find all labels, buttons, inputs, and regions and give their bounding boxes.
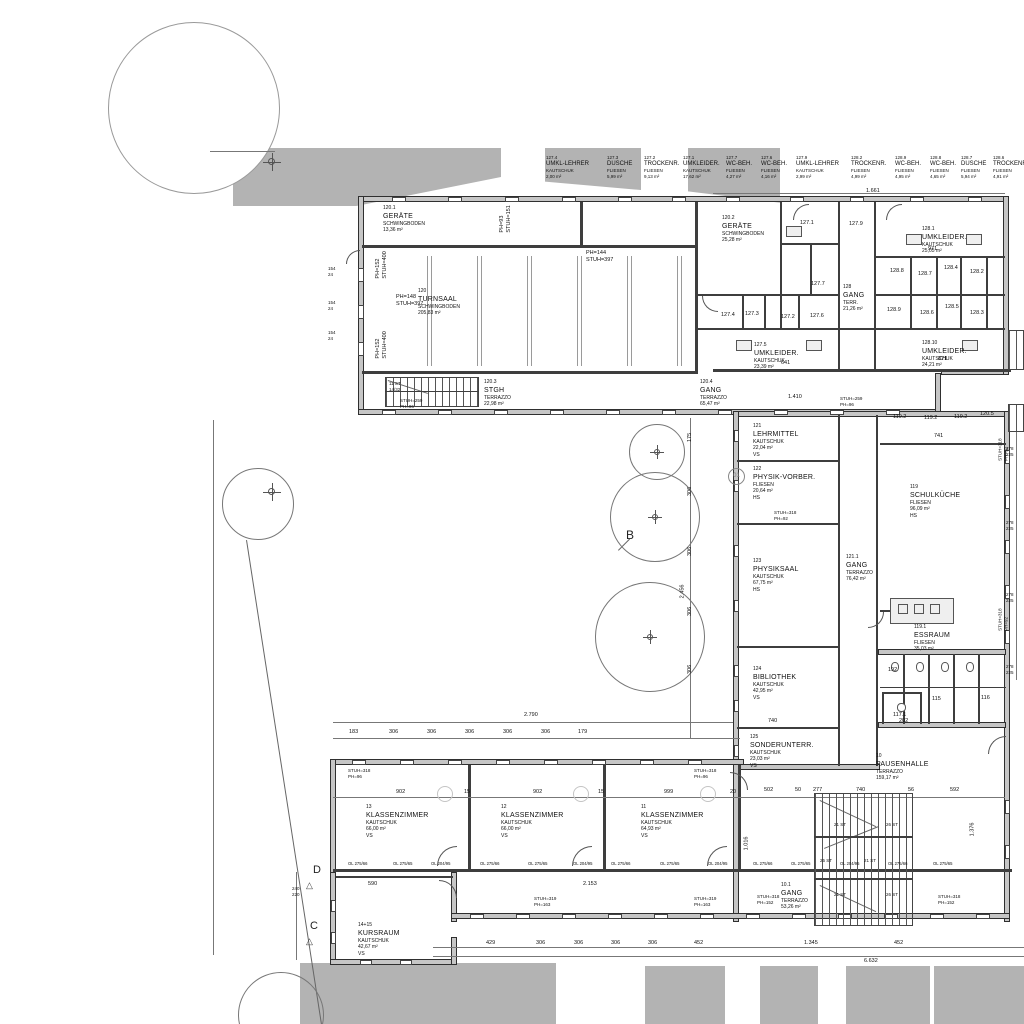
staircase (1008, 404, 1024, 432)
annotation-w278b: 278 225 (1006, 520, 1014, 531)
window (726, 197, 740, 202)
window (360, 960, 372, 965)
annotation-w154b: 154 24 (328, 300, 336, 311)
paved-area (846, 966, 930, 1024)
stair-flight-label: 25 ST (820, 858, 832, 864)
partition-wall (780, 202, 782, 330)
partition-wall (810, 245, 812, 296)
small-room-number: 127.1 (800, 220, 814, 227)
dimension-line (690, 418, 691, 738)
window-label: OL 275/65 (528, 861, 547, 866)
tree-cross-icon (652, 514, 658, 520)
room-label-gang128: 128GANGTERR.21,26 m² (843, 284, 864, 313)
room-label-kursraum: 14+15KURSRAUMKAUTSCHUK42,67 m²VS (358, 922, 400, 957)
window-label: OL 275/66 (611, 861, 630, 866)
small-room-number: 127.6 (810, 313, 824, 320)
beam-line (527, 256, 528, 366)
door-arc (868, 612, 884, 628)
top-room-label: 128.2TROCKENR.FLIESEN4,99 m² (851, 155, 886, 179)
section-arrow-c-icon: △ (306, 936, 313, 947)
window-label: OL 275/66 (348, 861, 367, 866)
top-room-label: 128.9WC-BEH.FLIESEN4,95 m² (895, 155, 921, 179)
beam-line (681, 256, 682, 366)
stair-flight-label: 26 ST (886, 892, 898, 898)
window (910, 197, 924, 202)
partition-wall (874, 202, 876, 372)
window (688, 760, 702, 765)
partition-wall (742, 294, 744, 330)
partition-wall (764, 294, 766, 330)
paved-area (300, 963, 556, 1024)
top-room-label: 128.6TROCKENR.FLIESEN4,91 m² (993, 155, 1024, 179)
room-label-pausenhalle: 10PAUSENHALLETERRAZZO159,17 m² (876, 753, 929, 782)
top-room-label: 127.7WC-BEH.FLIESEN4,27 m² (726, 155, 752, 179)
annotation-ph144: PH=144 STUH=397 (586, 250, 613, 264)
dimension-value: 452 (694, 940, 703, 947)
window (790, 197, 804, 202)
annotation-st318a: STUH=318 PH=96 (348, 768, 370, 779)
window-label: OL 275/66 (480, 861, 499, 866)
small-room-number: 127.7 (811, 281, 825, 288)
small-room-number: 120.5 (980, 411, 994, 418)
room-label-umkl1275: 127.5UMKLEIDER.KAUTSCHUK23,39 m² (754, 342, 799, 371)
annotation-ph152a: PH=152 STUH=400 (375, 251, 389, 278)
window-label: OL 275/65 (791, 861, 810, 866)
fixture (736, 340, 752, 351)
window-label: OL 275/65 (660, 861, 679, 866)
small-room-number: 116 (981, 695, 990, 702)
annotation-n2153: 2.153 (583, 881, 597, 888)
dimension-value: 179 (578, 729, 587, 736)
dimension-value: 306 (541, 729, 550, 736)
room-label-kz11: 11KLASSENZIMMERKAUTSCHUK64,93 m²VS (641, 804, 704, 839)
annotation-v306d: 306 (687, 665, 694, 674)
beam-line (477, 256, 478, 366)
partition-wall (882, 692, 922, 694)
dimension-value: 20 (730, 789, 736, 796)
window (516, 914, 530, 919)
wall (451, 913, 1010, 919)
room-label-geraete1: 120.1GERÄTESCHWINGBODEN13,36 m² (383, 205, 425, 234)
partition-wall (838, 415, 840, 766)
window-label: OL 275/65 (393, 861, 412, 866)
window (718, 410, 732, 415)
window (1005, 630, 1010, 644)
small-room-number: 128.5 (945, 304, 959, 311)
dimension-line (433, 956, 1024, 957)
dimension-value: 306 (574, 940, 583, 947)
dimension-value: 306 (427, 729, 436, 736)
wall (330, 759, 336, 877)
partition-wall (880, 443, 1006, 445)
toilet-icon (966, 662, 974, 672)
annotation-v306b: 306 (687, 547, 694, 556)
toilet-icon (941, 662, 949, 672)
window (358, 305, 364, 319)
window-label: OL 275/66 (753, 861, 772, 866)
door-arc (988, 736, 1006, 754)
dimension-value: 306 (389, 729, 398, 736)
small-room-number: 119.2 (893, 414, 906, 421)
small-room-number: 115 (932, 696, 941, 703)
small-room-number: 128.2 (970, 269, 984, 276)
top-room-label: 127.4UMKL-LEHRERKAUTSCHUK2,00 m² (546, 155, 589, 179)
window (734, 545, 739, 557)
small-room-number: 127.9 (849, 221, 863, 228)
window (592, 760, 606, 765)
paved-area (645, 966, 725, 1024)
window-label: OL 204/95 (431, 861, 450, 866)
top-room-label: 127.2TROCKENR.FLIESEN9,13 m² (644, 155, 679, 179)
annotation-st318b: STUH=318 PH=96 (694, 768, 716, 779)
stair-flight-label: 21 ST (834, 822, 846, 828)
fixture (966, 234, 982, 245)
dimension-line (213, 420, 214, 955)
tree-circle (222, 468, 294, 540)
window (331, 932, 336, 944)
partition-wall (798, 294, 800, 330)
tree-cross-icon (654, 449, 660, 455)
wall (330, 959, 457, 965)
annotation-w154a: 154 24 (328, 266, 336, 277)
window (930, 914, 944, 919)
tree-canopy (108, 22, 280, 194)
top-room-label: 127.3DUSCHEFLIESEN5,99 m² (607, 155, 632, 179)
window (662, 410, 676, 415)
wall (330, 872, 336, 965)
annotation-n590: 590 (368, 881, 377, 888)
door-arc (730, 772, 748, 790)
room-label-essraum: 119.1ESSRAUMFLIESEN35,03 m² (914, 624, 950, 653)
annotation-n971: 971 (928, 246, 937, 253)
dimension-line (210, 151, 275, 152)
annotation-v306c: 306 (687, 607, 694, 616)
window (606, 410, 620, 415)
window (792, 914, 806, 919)
dimension-value: 902 (533, 789, 542, 796)
annotation-n192: 192 (888, 667, 897, 674)
window (1005, 495, 1010, 509)
small-room-number: 119.2 (954, 414, 967, 421)
annotation-n641: 641 (781, 360, 790, 367)
fixture (806, 340, 822, 351)
window (382, 410, 396, 415)
dimension-value: 15 (598, 789, 604, 796)
wall (935, 373, 941, 415)
partition-wall (737, 460, 840, 462)
dimension-line (333, 738, 740, 739)
beam-line (481, 256, 482, 366)
dimension-value: 429 (486, 940, 495, 947)
partition-wall (953, 654, 955, 724)
room-label-kz13: 13KLASSENZIMMERKAUTSCHUK66,00 m²VS (366, 804, 429, 839)
window (640, 760, 654, 765)
window-label: OL 204/95 (573, 861, 592, 866)
room-label-gang1211: 121.1GANGTERRAZZO76,42 m² (846, 554, 873, 583)
partition-wall (580, 202, 583, 247)
annotation-ph93: PH=93 STUH=151 (499, 205, 513, 232)
window (618, 197, 632, 202)
annotation-n202: 202 (899, 718, 908, 725)
annotation-ph152b: PH=152 STUH=400 (375, 331, 389, 358)
room-label-schulkueche: 119SCHULKÜCHEFLIESEN96,09 m²HS (910, 484, 960, 519)
staircase (1008, 330, 1024, 370)
annotation-n2456: 2.456 (679, 585, 686, 599)
small-room-number: 128.3 (970, 310, 984, 317)
partition-wall (882, 692, 884, 724)
dimension-value: 306 (465, 729, 474, 736)
small-room-number: 127.2 (781, 314, 795, 321)
window (550, 410, 564, 415)
room-label-sonderunterr: 125SONDERUNTERR.KAUTSCHUK23,03 m²VS (750, 734, 814, 769)
partition-wall (603, 765, 606, 871)
annotation-n175: 175 (687, 433, 694, 442)
partition-wall (880, 687, 1006, 688)
dimension-line (333, 722, 733, 723)
diagonal-line (246, 540, 322, 1024)
partition-wall (986, 256, 988, 330)
dimension-value: 1.345 (804, 940, 818, 947)
stair-flight-label: 26 ST (886, 822, 898, 828)
dimension-value: 183 (349, 729, 358, 736)
window (544, 760, 558, 765)
window-label: OL 204/95 (840, 861, 859, 866)
small-room-number: 119.2 (924, 415, 937, 422)
partition-wall (910, 256, 912, 330)
partition-wall (737, 646, 840, 648)
window (734, 745, 739, 757)
beam-line (581, 256, 582, 366)
beam-line (677, 256, 678, 366)
annotation-w278d: 278 225 (1006, 664, 1014, 675)
room-label-umkl12810: 128.10UMKLEIDER.KAUTSCHUK24,21 m² (922, 340, 967, 369)
dimension-value: 15 (464, 789, 470, 796)
wall (451, 937, 457, 965)
stair-flight-label: 21 ST (864, 858, 876, 864)
annotation-n6632: 6.632 (864, 958, 878, 965)
tree-cross-icon (647, 634, 653, 640)
partition-wall (936, 256, 938, 330)
window (505, 197, 519, 202)
beam-line (531, 256, 532, 366)
room-label-bibliothek: 124BIBLIOTHEKKAUTSCHUK42,95 m²VS (753, 666, 796, 701)
partition-wall (920, 692, 922, 724)
small-room-number: 128.6 (920, 310, 934, 317)
window (352, 760, 366, 765)
room-label-gang101: 10.1GANGTERRAZZO53,26 m² (781, 882, 808, 911)
window (562, 914, 576, 919)
partition-wall (876, 415, 878, 766)
window-label: OL 204/95 (708, 861, 727, 866)
window (672, 197, 686, 202)
room-label-gang1204: 120.4GANGTERRAZZO65,47 m² (700, 379, 727, 408)
partition-wall (362, 371, 698, 374)
dimension-value: 306 (503, 729, 512, 736)
tree-cross-icon (268, 488, 275, 495)
annotation-n871: 871 (938, 356, 947, 363)
window (734, 430, 739, 442)
small-room-number: 128.7 (918, 271, 932, 278)
window (448, 760, 462, 765)
dimension-line (713, 193, 1005, 194)
annotation-n1016: 1.016 (743, 837, 750, 851)
top-room-label: 128.8WC-BEH.FLIESEN4,65 m² (930, 155, 956, 179)
section-marker-c: C (310, 920, 318, 932)
room-label-stgh: 120.3STGHTERRAZZO22,98 m² (484, 379, 511, 408)
window-label: OL 275/65 (933, 861, 952, 866)
window (734, 665, 739, 677)
section-arrow-d-icon: △ (306, 880, 313, 891)
partition-wall (468, 765, 471, 871)
annotation-st259b: STUH=259 PH=96 (840, 396, 862, 407)
room-label-physikvorber: 122PHYSIK-VORBER.FLIESEN20,64 m²HS (753, 466, 815, 501)
small-room-number: 127.4 (721, 312, 735, 319)
stair-flight-label: 21 ST (834, 892, 846, 898)
dimension-value: 999 (664, 789, 673, 796)
wall (733, 411, 739, 770)
dimension-value: 50 (795, 787, 801, 794)
annotation-st259a: STUH=259 PH=96 (400, 398, 422, 409)
window (496, 760, 510, 765)
partition-wall (978, 654, 980, 724)
partition-wall (960, 256, 962, 330)
annotation-n740a: 740 (768, 718, 777, 725)
annotation-ph148: PH=148 STUH=397 (396, 294, 423, 308)
window (448, 197, 462, 202)
section-marker-b: B (626, 528, 634, 542)
toilet-icon (897, 703, 906, 712)
fixture (914, 604, 924, 614)
window (700, 914, 714, 919)
window (331, 900, 336, 912)
partition-wall (838, 202, 840, 372)
small-room-number: 128.8 (890, 268, 904, 275)
partition-wall (737, 523, 840, 525)
window (358, 342, 364, 356)
section-marker-d: D (313, 864, 321, 876)
annotation-n1376: 1.376 (969, 823, 976, 837)
partition-wall (737, 727, 840, 729)
room-label-lehrmittel: 121LEHRMITTELKAUTSCHUK22,04 m²VS (753, 423, 799, 458)
small-room-number: 128.4 (944, 265, 958, 272)
dimension-line (1016, 425, 1017, 680)
small-room-number: 128.9 (887, 307, 901, 314)
annotation-v306a: 306 (687, 487, 694, 496)
annotation-w278c: 278 225 (1006, 592, 1014, 603)
annotation-st318e: STUH=318 PH=92 (774, 510, 796, 521)
window (400, 960, 412, 965)
window (850, 197, 864, 202)
dimension-value: 902 (396, 789, 405, 796)
annotation-w278a: 278 225 (1006, 446, 1014, 457)
door-arc (793, 204, 809, 220)
window (400, 760, 414, 765)
small-room-number: 127.3 (745, 311, 759, 318)
dimension-line (433, 947, 1024, 948)
room-label-geraete2: 120.2GERÄTESCHWINGBODEN25,28 m² (722, 215, 764, 244)
fixture (898, 604, 908, 614)
dimension-value: 740 (856, 787, 865, 794)
window (976, 914, 990, 919)
annotation-st318g: STUH=318 PH=92 (998, 608, 1009, 630)
window (438, 410, 452, 415)
partition-wall (695, 202, 698, 372)
window (1005, 845, 1010, 859)
door-arc (886, 204, 902, 220)
top-room-label: 128.7DUSCHEFLIESEN5,94 m² (961, 155, 986, 179)
room-label-physiksaal: 123PHYSIKSAALKAUTSCHUK67,75 m²HS (753, 558, 799, 593)
annotation-n1410: 1.410 (788, 394, 802, 401)
window (562, 197, 576, 202)
annotation-st318d: STUH=318 PH=152 (938, 894, 960, 905)
window (358, 268, 364, 282)
wall (878, 722, 1006, 728)
beam-line (577, 256, 578, 366)
window (470, 914, 484, 919)
partition-wall (928, 654, 930, 724)
room-label-kz12: 12KLASSENZIMMERKAUTSCHUK66,00 m²VS (501, 804, 564, 839)
annotation-n1661: 1.661 (866, 188, 880, 195)
partition-wall (336, 876, 453, 878)
beam-line (627, 256, 628, 366)
room-label-turnsaal: 120TURNSAALSCHWINGBODEN205,83 m² (418, 288, 460, 317)
window (968, 197, 982, 202)
fixture (906, 234, 922, 245)
paved-area (934, 966, 1024, 1024)
annotation-n741: 741 (934, 433, 943, 440)
stair-rail (814, 836, 913, 838)
dimension-value: 452 (894, 940, 903, 947)
reference-circle (573, 786, 589, 802)
dimension-value: 592 (950, 787, 959, 794)
top-room-label: 127.6WC-BEH.FLIESEN4,16 m² (761, 155, 787, 179)
annotation-st11: 11 ST 14/32 (389, 381, 401, 392)
grid-bubble-01: 01 (728, 468, 745, 485)
annotation-st319b: STUH=319 PH=163 (694, 896, 716, 907)
annotation-w154c: 154 24 (328, 330, 336, 341)
dimension-value: 306 (611, 940, 620, 947)
window (1005, 540, 1010, 554)
dimension-value: 277 (813, 787, 822, 794)
wall (330, 759, 744, 765)
window (746, 914, 760, 919)
fixture (930, 604, 940, 614)
window (1005, 800, 1010, 814)
stair-rail (814, 878, 913, 880)
dimension-value: 56 (908, 787, 914, 794)
reference-circle (700, 786, 716, 802)
window (734, 600, 739, 612)
dimension-value: 306 (648, 940, 657, 947)
paved-area (1014, 966, 1024, 1024)
window (774, 410, 788, 415)
dimension-value: 306 (536, 940, 545, 947)
window (494, 410, 508, 415)
door-arc (346, 250, 360, 264)
annotation-n2790: 2.790 (524, 712, 538, 719)
window (654, 914, 668, 919)
fixture (786, 226, 802, 237)
window-label: OL 275/66 (888, 861, 907, 866)
paved-area (760, 966, 818, 1024)
tree-cross-icon (268, 158, 275, 165)
annotation-n240220: 240 220 (292, 886, 300, 897)
door-arc (702, 296, 718, 312)
window (392, 197, 406, 202)
annotation-st318c: STUH=318 PH=152 (757, 894, 779, 905)
top-room-label: 127.1UMKLEIDER.KAUTSCHUK17,62 m² (683, 155, 720, 179)
window (830, 410, 844, 415)
